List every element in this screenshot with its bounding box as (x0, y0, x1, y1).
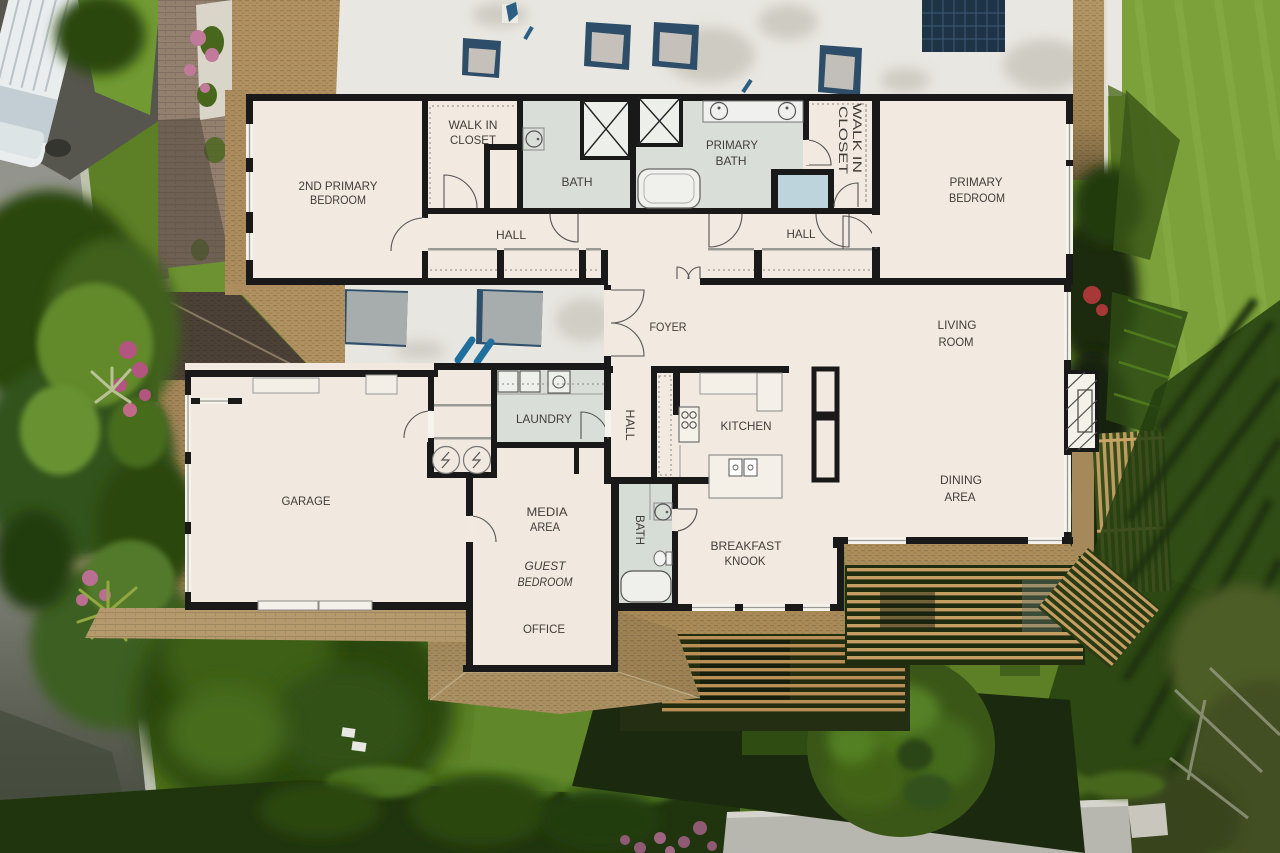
svg-text:BATH: BATH (633, 515, 647, 545)
svg-text:MEDIA: MEDIA (527, 505, 568, 519)
svg-text:ROOM: ROOM (939, 335, 974, 349)
svg-text:LAUNDRY: LAUNDRY (516, 412, 572, 426)
svg-text:CLOSET: CLOSET (836, 106, 850, 175)
svg-text:BREAKFAST: BREAKFAST (711, 539, 783, 553)
svg-text:GARAGE: GARAGE (282, 494, 331, 508)
svg-text:FOYER: FOYER (650, 320, 687, 334)
svg-text:BATH: BATH (716, 154, 747, 168)
svg-text:DINING: DINING (940, 473, 982, 487)
svg-text:HALL: HALL (623, 410, 637, 441)
svg-text:WALK IN: WALK IN (850, 103, 864, 173)
svg-text:KITCHEN: KITCHEN (721, 419, 772, 433)
svg-text:2ND PRIMARY: 2ND PRIMARY (299, 179, 378, 193)
svg-text:BEDROOM: BEDROOM (949, 191, 1005, 205)
svg-text:AREA: AREA (530, 520, 560, 534)
svg-text:CLOSET: CLOSET (450, 133, 497, 147)
svg-text:KNOOK: KNOOK (725, 554, 766, 568)
svg-text:WALK IN: WALK IN (449, 118, 498, 132)
svg-text:BEDROOM: BEDROOM (518, 575, 573, 589)
svg-text:BEDROOM: BEDROOM (310, 193, 366, 207)
svg-text:AREA: AREA (945, 490, 976, 504)
svg-text:PRIMARY: PRIMARY (706, 138, 758, 152)
svg-text:HALL: HALL (787, 227, 816, 241)
svg-text:PRIMARY: PRIMARY (950, 175, 1003, 189)
svg-text:BATH: BATH (562, 175, 593, 189)
svg-text:OFFICE: OFFICE (523, 622, 565, 636)
svg-text:HALL: HALL (496, 228, 526, 242)
svg-text:LIVING: LIVING (938, 318, 977, 332)
svg-text:GUEST: GUEST (525, 559, 568, 573)
